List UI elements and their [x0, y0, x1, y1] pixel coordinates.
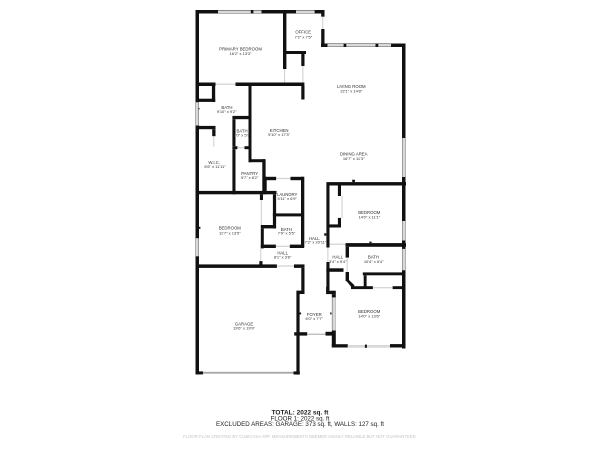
svg-text:9'10" x 17'3": 9'10" x 17'3"	[268, 132, 291, 137]
svg-text:EXCLUDED AREAS: GARAGE: 373 sq: EXCLUDED AREAS: GARAGE: 373 sq. ft, WALL…	[216, 421, 384, 428]
svg-text:5'7" x 8'2": 5'7" x 8'2"	[241, 175, 259, 180]
svg-text:FLOOR PLAN CREATED BY CUBICASA: FLOOR PLAN CREATED BY CUBICASA APP. MEAS…	[183, 434, 417, 439]
svg-text:9'10" x 9'2": 9'10" x 9'2"	[217, 109, 237, 114]
svg-text:6'0" x 7'7": 6'0" x 7'7"	[306, 316, 324, 321]
svg-text:11'7" x 13'5": 11'7" x 13'5"	[219, 230, 241, 235]
svg-text:3'0" x 5'9": 3'0" x 5'9"	[234, 133, 252, 138]
svg-text:14'0" x 11'1": 14'0" x 11'1"	[358, 215, 380, 220]
svg-text:7'2" x 20'11": 7'2" x 20'11"	[305, 240, 327, 245]
svg-text:10'4" x 5'4": 10'4" x 5'4"	[364, 259, 384, 264]
svg-text:6'6" x 11'11": 6'6" x 11'11"	[204, 164, 226, 169]
svg-text:8'1" x 3'6": 8'1" x 3'6"	[274, 254, 292, 259]
svg-text:14'0" x 13'6": 14'0" x 13'6"	[358, 313, 381, 318]
svg-text:16'7" x 11'3": 16'7" x 11'3"	[343, 156, 365, 161]
svg-text:19'6" x 19'9": 19'6" x 19'9"	[233, 325, 256, 330]
svg-text:3'4" x 5'4": 3'4" x 5'4"	[329, 259, 347, 264]
svg-text:16'2" x 13'3": 16'2" x 13'3"	[230, 51, 253, 56]
svg-text:22'1" x 14'8": 22'1" x 14'8"	[340, 89, 363, 94]
svg-text:7'9" x 5'5": 7'9" x 5'5"	[278, 230, 296, 235]
svg-text:5'11" x 6'9": 5'11" x 6'9"	[277, 196, 297, 201]
svg-text:7'2" x 7'5": 7'2" x 7'5"	[295, 34, 313, 39]
